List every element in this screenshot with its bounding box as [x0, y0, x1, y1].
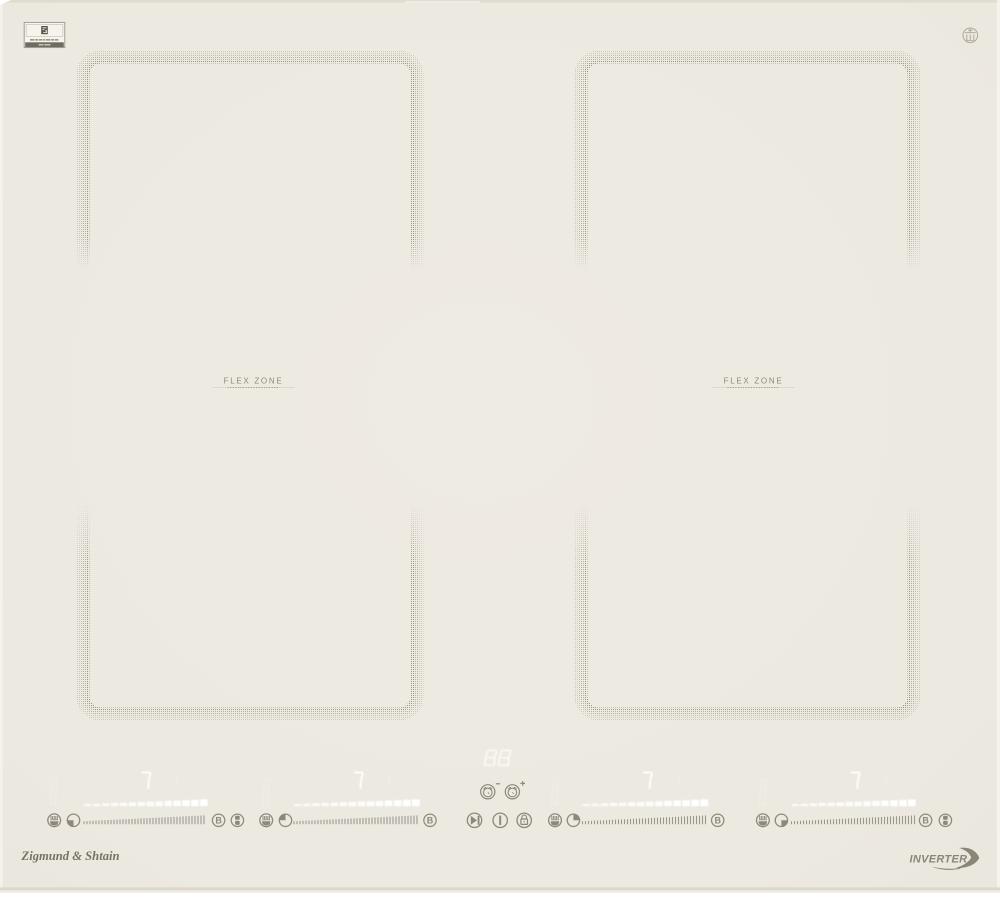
svg-text:B: B — [215, 815, 222, 825]
svg-text:FLEX ZONE: FLEX ZONE — [724, 377, 784, 386]
svg-text:Zigmund & Shtain: Zigmund & Shtain — [21, 849, 120, 863]
svg-text:FLEX ZONE: FLEX ZONE — [224, 377, 284, 386]
svg-text:B: B — [427, 815, 434, 825]
svg-text:INVERTER: INVERTER — [910, 854, 968, 866]
svg-text:B: B — [922, 815, 929, 825]
svg-text:B: B — [714, 815, 721, 825]
